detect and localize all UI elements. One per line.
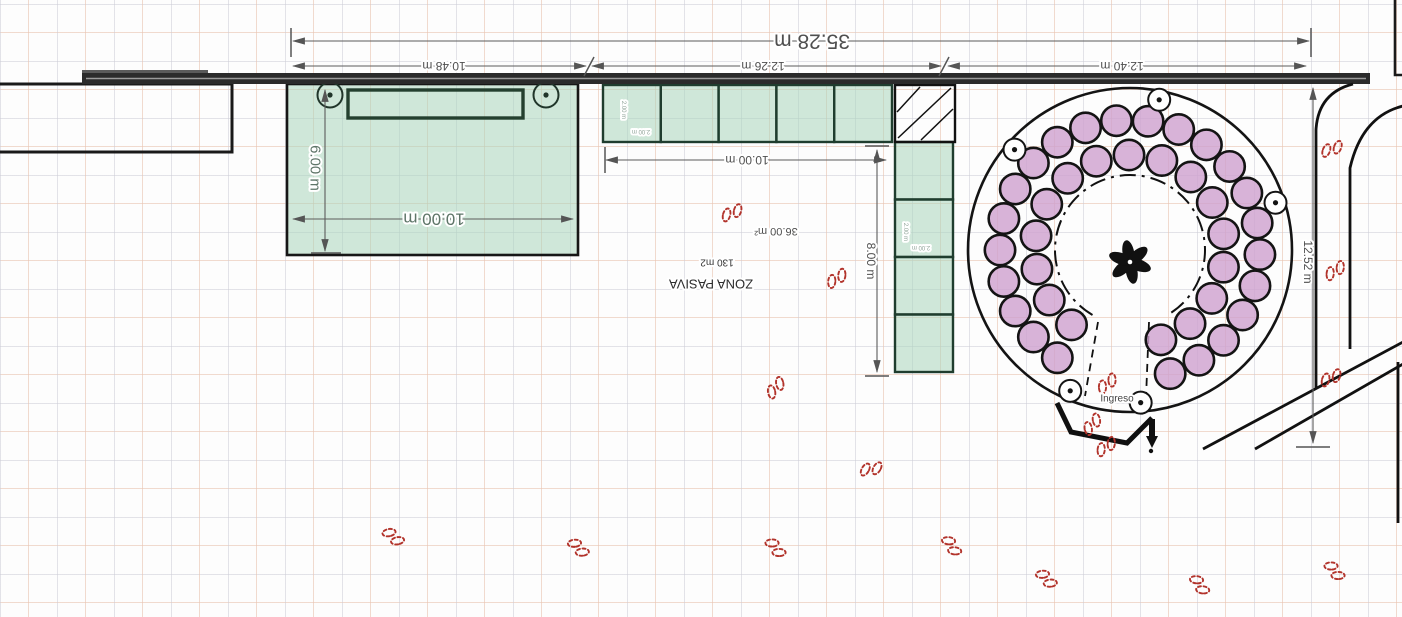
kiosk-cell	[895, 142, 953, 200]
seating-circle	[1208, 219, 1238, 249]
left-room-outline	[0, 84, 232, 152]
kiosk-cell	[834, 85, 892, 142]
seating-circle	[1208, 252, 1238, 282]
palm-tree-icon	[1107, 239, 1152, 284]
road-edge	[1203, 342, 1402, 449]
seating-circle	[1000, 174, 1030, 204]
seating-circle	[1147, 145, 1177, 175]
ingreso: Ingreso	[1100, 394, 1134, 405]
area-36-00: 36.00 m²	[754, 225, 798, 237]
zona-pasiva: ZONA PASIVA	[669, 277, 753, 292]
footprints-icon	[1082, 413, 1102, 436]
footprints-icon	[859, 456, 884, 482]
seating-circle	[1242, 208, 1272, 238]
seating-circle	[1032, 189, 1062, 219]
seating-circle	[1021, 221, 1051, 251]
lamp-icon	[1059, 380, 1081, 402]
drawing-canvas[interactable]: 35.28 m10.48 m12.26 m12.40 m12.52 m6.00 …	[0, 0, 1402, 617]
lamp-icon	[1148, 89, 1170, 111]
seating-circle	[1191, 130, 1221, 160]
cell-2m-v1: 2.00 m	[620, 101, 626, 119]
entrance-arrow	[1146, 436, 1158, 448]
footprints-icon	[721, 201, 742, 225]
seating-circle	[1155, 358, 1185, 388]
dim-35-28: 35.28 m	[774, 30, 850, 53]
dim-10-00-mid: 10.00 m	[725, 153, 768, 167]
palm-center	[1128, 260, 1133, 265]
seating-circle	[1245, 239, 1275, 269]
seating-circle	[989, 203, 1019, 233]
footprints-icon	[382, 527, 405, 547]
corridor-dash	[1085, 322, 1098, 396]
seating-circle	[1052, 163, 1082, 193]
seating-circle	[1214, 151, 1244, 181]
plaza-entry-corridor-dashes	[1085, 322, 1149, 398]
footprints-icon	[1321, 137, 1344, 162]
road-edge	[1350, 106, 1402, 349]
kiosk-cell	[719, 85, 777, 142]
dim-6-00: 6.00 m	[307, 145, 324, 191]
hatch-line	[897, 87, 920, 112]
kiosk-cell	[895, 315, 953, 373]
hatch-line	[898, 88, 951, 138]
dim-10-00-left: 10.00 m	[403, 210, 464, 229]
seating-circle	[1018, 322, 1048, 352]
road-edge	[1316, 84, 1353, 388]
seating-circle	[1208, 325, 1238, 355]
lamp-icon	[1265, 192, 1287, 214]
footprints-icon	[941, 537, 963, 555]
kiosk-cell	[895, 257, 953, 315]
seating-circle	[1000, 296, 1030, 326]
dim-10-48: 10.48 m	[422, 59, 465, 73]
hatch-line	[921, 109, 953, 140]
kiosk-cell	[776, 85, 834, 142]
dim-12-26: 12.26 m	[741, 59, 784, 73]
entrance-dot	[1149, 449, 1153, 453]
seating-circle	[985, 235, 1015, 265]
floor-plan-svg: 35.28 m10.48 m12.26 m12.40 m12.52 m6.00 …	[0, 0, 1402, 617]
kiosk-cell	[661, 85, 719, 142]
seating-circle	[1146, 325, 1176, 355]
seating-circle	[1227, 300, 1257, 330]
top-right-corner-wall	[1395, 0, 1402, 75]
seating-circle	[989, 266, 1019, 296]
seating-circle	[1042, 127, 1072, 157]
dim-12-40: 12.40 m	[1100, 59, 1143, 73]
seating-circle	[1101, 106, 1131, 136]
dim-12-52: 12.52 m	[1301, 240, 1315, 283]
footprints-icon	[1189, 576, 1211, 594]
seating-circle	[1056, 310, 1086, 340]
seating-circle	[1081, 146, 1111, 176]
cell-2m-h2: 2.00 m	[912, 244, 930, 250]
cell-2m-v2: 2.00 m	[902, 223, 908, 241]
seating-circle	[1070, 113, 1100, 143]
seating-circle	[1022, 254, 1052, 284]
seating-circle	[1232, 178, 1262, 208]
cell-2m-h1: 2.00 m	[632, 128, 650, 134]
seating-circle	[1175, 308, 1205, 338]
footprints-icon	[1099, 373, 1116, 393]
hatched-cell	[895, 85, 955, 142]
footprints-icon	[766, 376, 786, 399]
footprints-icon	[1324, 562, 1344, 579]
seating-circle	[1184, 345, 1214, 375]
seating-circle	[1114, 140, 1144, 170]
footprints-icon	[828, 268, 846, 290]
seating-circle	[1240, 271, 1270, 301]
seating-circle	[1197, 187, 1227, 217]
footprints-icon	[765, 539, 785, 556]
footprints-icon	[1036, 570, 1058, 588]
lamp-icon	[1004, 139, 1026, 161]
area-130: 130 m2	[700, 257, 734, 268]
dim-8-00: 8.00 m	[864, 243, 878, 280]
seating-circle	[1163, 114, 1193, 144]
seating-circle	[1176, 162, 1206, 192]
footprints-icon	[1326, 260, 1344, 282]
footprints-icon	[568, 539, 590, 557]
seating-circle	[1034, 285, 1064, 315]
seating-circle	[1042, 343, 1072, 373]
seating-circle	[1197, 283, 1227, 313]
